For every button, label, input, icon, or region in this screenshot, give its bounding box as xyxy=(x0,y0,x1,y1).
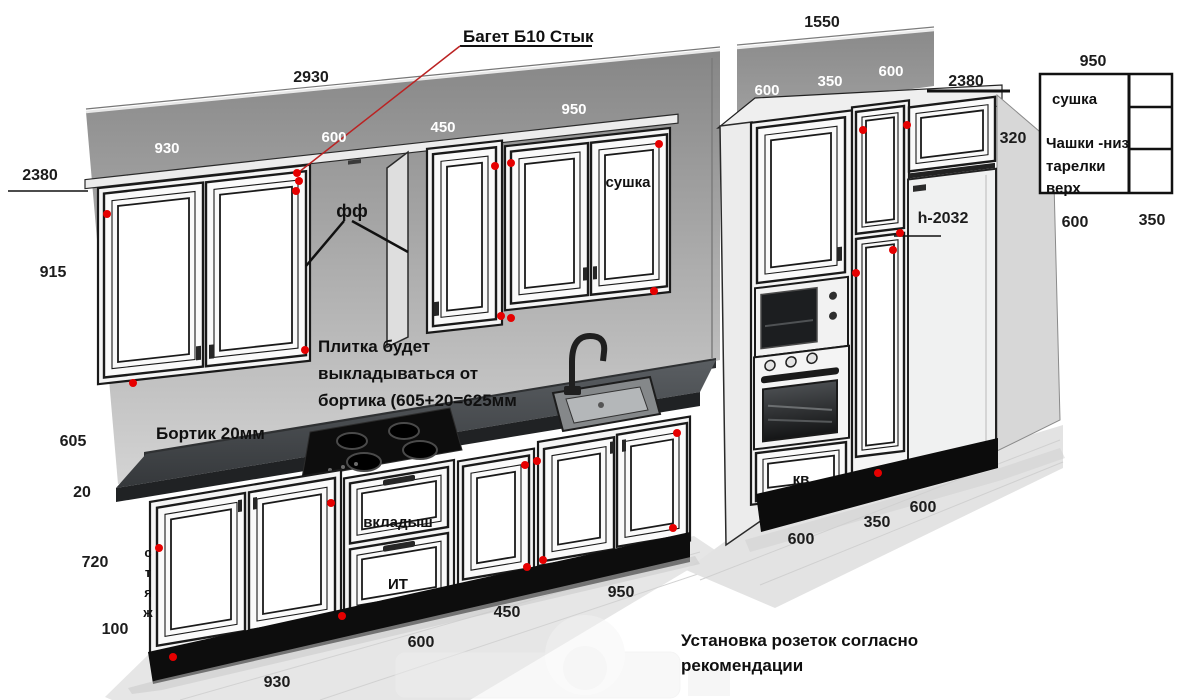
door-handle xyxy=(837,247,842,262)
legend-row2-line1: Чашки -низ xyxy=(1046,135,1129,152)
burner xyxy=(389,423,419,439)
dim-plinth-height: 100 xyxy=(102,621,129,638)
red-dot xyxy=(507,159,515,167)
label-it: ИТ xyxy=(388,576,408,593)
label-kv: кв xyxy=(793,471,810,488)
legend-row2-line3: верх xyxy=(1046,180,1081,197)
red-dot xyxy=(539,556,547,564)
glass-door xyxy=(757,117,845,283)
oven xyxy=(754,346,849,450)
upper-cabinet-450 xyxy=(427,141,502,333)
red-dot xyxy=(292,187,300,195)
dim-base-950: 950 xyxy=(608,584,635,601)
red-dot xyxy=(874,469,882,477)
dim-bortik-height: 20 xyxy=(73,484,91,501)
red-dot xyxy=(650,287,658,295)
red-dot xyxy=(155,544,163,552)
dim-wall-left-total: 2930 xyxy=(293,69,329,86)
dim-base-930: 930 xyxy=(264,674,291,691)
glass-door xyxy=(856,106,904,234)
legend-row2-line2: тарелки xyxy=(1046,158,1105,175)
microwave xyxy=(755,277,848,357)
annotation-tile-note-3: бортика (605+20=625мм xyxy=(318,391,517,410)
red-dot xyxy=(338,612,346,620)
door-handle xyxy=(593,266,597,279)
dim-upper-600: 600 xyxy=(321,129,346,146)
cabinet-door xyxy=(463,455,529,579)
dim-band-350: 350 xyxy=(817,73,842,90)
annotation-sockets-1: Установка розеток согласно xyxy=(681,631,918,650)
label-sushka-door: сушка xyxy=(605,174,651,191)
red-dot xyxy=(507,314,515,322)
kitchen-drawing-canvas: 2930 1550 2380 320 h-2032 2380 915 605 2… xyxy=(0,0,1180,700)
red-dot xyxy=(293,169,301,177)
red-dot xyxy=(295,177,303,185)
annotation-styazh-letter: т xyxy=(145,565,151,580)
red-dot xyxy=(327,499,335,507)
dim-base-450: 450 xyxy=(494,604,521,621)
cabinet-door xyxy=(433,147,496,326)
cabinet-door xyxy=(544,437,614,561)
red-dot xyxy=(669,524,677,532)
base-cabinet-450 xyxy=(458,449,534,586)
red-dot xyxy=(521,461,529,469)
annotation-baget: Багет Б10 Стык xyxy=(463,27,594,46)
legend-table: 950 сушка Чашки -низ тарелки верх 600 35… xyxy=(1040,53,1172,231)
red-dot xyxy=(491,162,499,170)
label-vkladysh: вкладыш xyxy=(363,514,433,531)
dim-fridge-top-cabinet: 320 xyxy=(1000,130,1027,147)
kitchen-elevation-drawing: 2930 1550 2380 320 h-2032 2380 915 605 2… xyxy=(0,0,1180,700)
annotation-tile-note-2: выкладываться от xyxy=(318,364,478,383)
red-dot xyxy=(497,312,505,320)
dim-backsplash-height: 605 xyxy=(60,433,87,450)
fridge-unit-600 xyxy=(908,97,996,461)
door-handle xyxy=(622,439,626,452)
tall-unit-oven-column xyxy=(751,110,852,504)
door-handle xyxy=(610,441,614,454)
red-dot xyxy=(852,269,860,277)
door-handle xyxy=(434,302,439,317)
legend-row1: сушка xyxy=(1052,91,1098,108)
dim-wall-right-total: 1550 xyxy=(804,14,840,31)
red-dot xyxy=(903,121,911,129)
door-handle xyxy=(238,500,242,513)
legend-bottom-left-dim: 600 xyxy=(1062,214,1089,231)
sink-drain xyxy=(598,402,604,408)
burner xyxy=(337,433,367,449)
oven-knob xyxy=(765,360,775,371)
door-handle xyxy=(196,346,201,361)
dim-upper-450: 450 xyxy=(430,119,455,136)
dim-fridge-height: h-2032 xyxy=(918,210,969,227)
red-dot xyxy=(301,346,309,354)
burner xyxy=(347,453,381,471)
legend-width-dim: 950 xyxy=(1080,53,1107,70)
dim-tall-600a: 600 xyxy=(788,531,815,548)
annotation-styazh-letter: я xyxy=(144,585,152,600)
annotation-tile-note-1: Плитка будет xyxy=(318,337,430,356)
red-dot xyxy=(655,140,663,148)
cabinet-door xyxy=(206,171,306,366)
red-dot xyxy=(523,563,531,571)
annotation-styazh-letter: ж xyxy=(142,605,153,620)
dim-upper-height: 915 xyxy=(40,264,67,281)
annotation-ff: фф xyxy=(336,201,368,221)
red-dot xyxy=(533,457,541,465)
red-dot xyxy=(896,229,904,237)
door-handle xyxy=(209,344,214,359)
oven-window xyxy=(763,380,837,441)
red-dot xyxy=(859,126,867,134)
oven-knob xyxy=(807,353,817,364)
cabinet-door xyxy=(104,183,203,378)
microwave-window xyxy=(761,288,817,349)
upper-cabinet-950 xyxy=(505,128,670,310)
annotation-bortik: Бортик 20мм xyxy=(156,424,265,443)
red-dot xyxy=(129,379,137,387)
red-dot xyxy=(673,429,681,437)
red-dot xyxy=(889,246,897,254)
dim-base-600: 600 xyxy=(408,634,435,651)
dim-band-600a: 600 xyxy=(754,82,779,99)
oven-knob xyxy=(786,356,796,367)
dim-upper-930: 930 xyxy=(154,140,179,157)
glass-door xyxy=(856,233,904,457)
burner xyxy=(403,441,437,459)
cabinet-door xyxy=(511,143,588,304)
fridge-top-cabinet xyxy=(909,97,995,172)
cabinet-door xyxy=(157,493,245,646)
door-handle xyxy=(583,267,587,280)
tall-units-group xyxy=(751,90,996,505)
annotation-styazh-letter: с xyxy=(144,545,151,560)
dim-height-left: 2380 xyxy=(22,167,58,184)
dim-base-height: 720 xyxy=(82,554,109,571)
dim-upper-950: 950 xyxy=(561,101,586,118)
dim-tall-600b: 600 xyxy=(910,499,937,516)
dim-band-600b: 600 xyxy=(878,63,903,80)
dim-tall-350: 350 xyxy=(864,514,891,531)
red-dot xyxy=(103,210,111,218)
upper-cabinet-930 xyxy=(98,165,310,384)
door-handle xyxy=(253,497,257,510)
dim-height-right: 2380 xyxy=(948,73,984,90)
legend-bottom-right-dim: 350 xyxy=(1139,212,1166,229)
cabinet-door xyxy=(249,478,335,630)
tall-unit-350 xyxy=(852,100,909,475)
cabinet-door xyxy=(591,134,667,294)
annotation-sockets-2: рекомендации xyxy=(681,656,803,675)
red-dot xyxy=(169,653,177,661)
